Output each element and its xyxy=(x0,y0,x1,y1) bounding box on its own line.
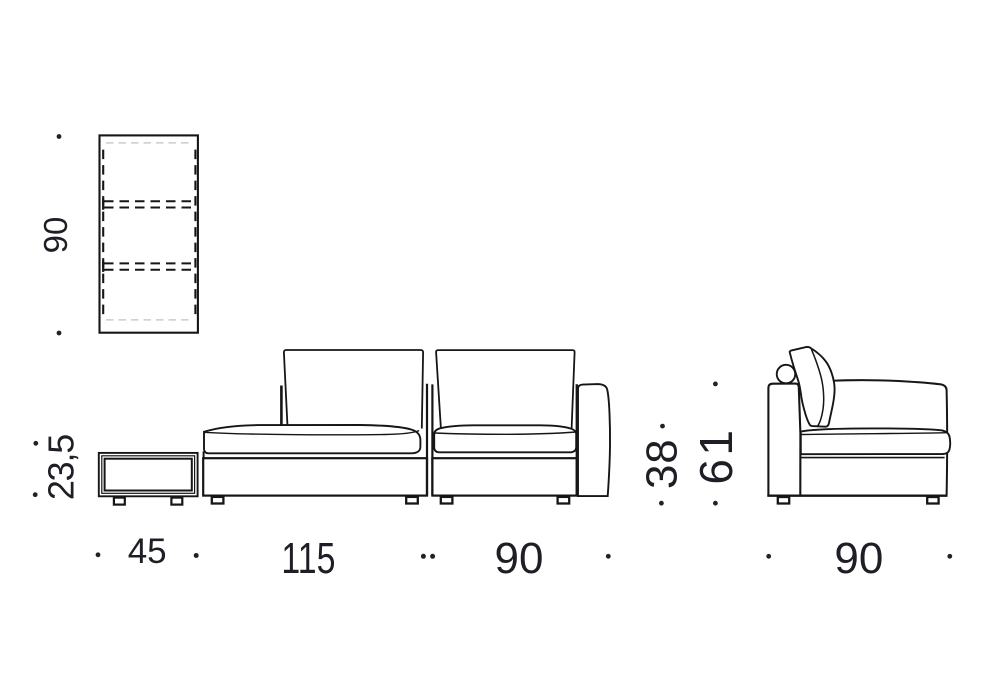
svg-text:90: 90 xyxy=(495,534,544,583)
svg-text:115: 115 xyxy=(281,534,335,583)
svg-text:45: 45 xyxy=(128,532,167,571)
svg-text:23,5: 23,5 xyxy=(40,435,81,500)
svg-text:90: 90 xyxy=(834,534,883,583)
svg-text:61: 61 xyxy=(690,427,742,485)
svg-text:38: 38 xyxy=(638,438,687,489)
svg-text:90: 90 xyxy=(37,217,74,254)
